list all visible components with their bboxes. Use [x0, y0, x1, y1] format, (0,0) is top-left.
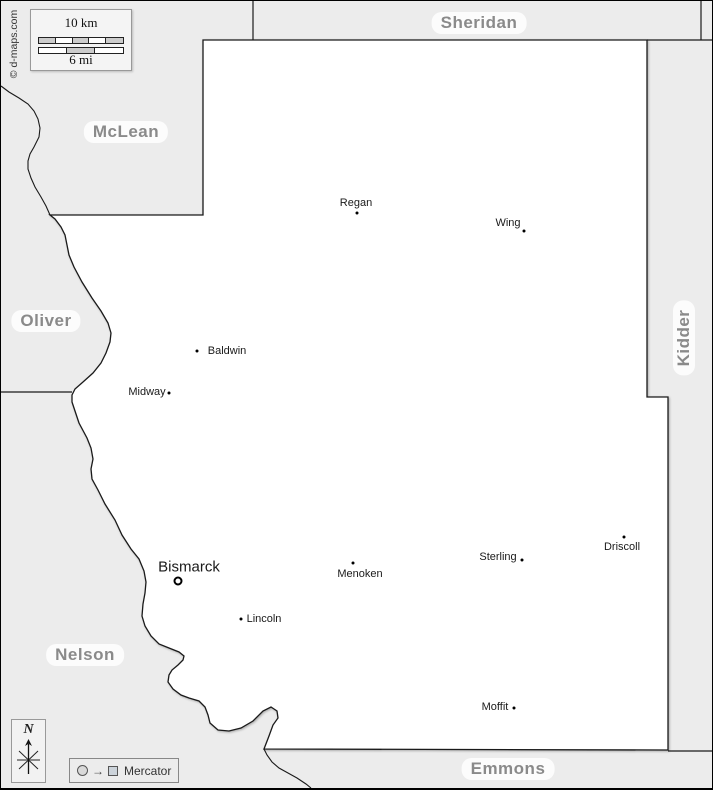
north-arrow: N [11, 719, 46, 783]
town-dot-moffit [513, 707, 516, 710]
town-dot-driscoll [623, 536, 626, 539]
river-south-segment [264, 749, 311, 788]
arrow-right-icon: → [92, 765, 104, 777]
town-dot-midway [168, 392, 171, 395]
town-label-driscoll: Driscoll [604, 541, 640, 553]
county-label-kidder: Kidder [673, 301, 695, 376]
town-label-midway: Midway [128, 386, 165, 398]
projection-legend: → Mercator [69, 758, 179, 783]
river-north-segment [1, 86, 50, 215]
county-label-sheridan: Sheridan [432, 12, 527, 34]
north-label: N [12, 722, 45, 738]
projection-label: Mercator [124, 764, 171, 778]
county-seat-marker [174, 577, 183, 586]
town-label-wing: Wing [495, 217, 520, 229]
town-label-moffit: Moffit [482, 701, 509, 713]
county-label-oliver: Oliver [11, 310, 80, 332]
town-dot-baldwin [196, 350, 199, 353]
map-canvas: Sheridan McLean Oliver Kidder Nelson Emm… [0, 0, 713, 790]
scale-bar: 10 km 6 mi [30, 9, 132, 71]
compass-icon [15, 738, 42, 778]
town-label-regan: Regan [340, 197, 372, 209]
map-shapes [1, 1, 712, 788]
town-label-sterling: Sterling [479, 551, 516, 563]
globe-icon [77, 765, 88, 776]
county-label-mclean: McLean [84, 121, 168, 143]
town-dot-wing [523, 230, 526, 233]
scale-km-bar [38, 37, 124, 44]
town-label-menoken: Menoken [337, 568, 382, 580]
attribution-text: © d-maps.com [8, 10, 20, 78]
county-seat-label: Bismarck [158, 559, 220, 576]
town-label-baldwin: Baldwin [208, 345, 247, 357]
town-label-lincoln: Lincoln [247, 613, 282, 625]
town-dot-lincoln [240, 618, 243, 621]
town-dot-menoken [352, 562, 355, 565]
flat-map-icon [108, 766, 118, 776]
county-label-emmons: Emmons [462, 758, 555, 780]
town-dot-regan [356, 212, 359, 215]
scale-mi-label: 6 mi [69, 52, 92, 68]
scale-km-label: 10 km [65, 15, 98, 31]
county-label-nelson: Nelson [46, 644, 124, 666]
town-dot-sterling [521, 559, 524, 562]
